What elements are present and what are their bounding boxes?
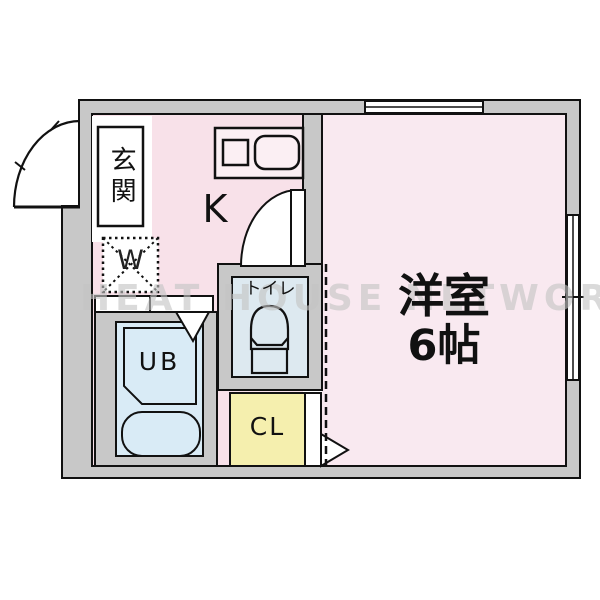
window-top-icon [365, 101, 483, 113]
toilet-label: トイレ [228, 281, 312, 299]
bathtub-icon [122, 412, 200, 456]
floorplan: HEAT HOUSE NETWORK 玄関 K W トイレ UB CL 洋室 6… [0, 0, 600, 600]
toilet-icon [251, 306, 288, 373]
kitchen-counter [215, 128, 303, 178]
kitchen-label: K [110, 190, 320, 230]
closet-door-panel [305, 393, 321, 466]
closet-label: CL [230, 414, 305, 440]
main-room-size-label: 6帖 [322, 324, 566, 369]
main-room-name-label: 洋室 [322, 272, 566, 320]
washer-label: W [103, 247, 158, 275]
bath-label: UB [116, 349, 203, 375]
